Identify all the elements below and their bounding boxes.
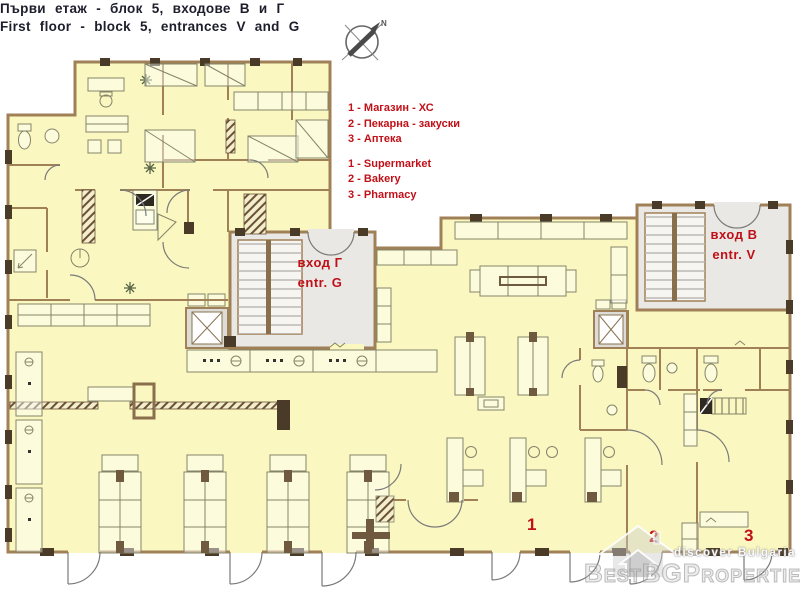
legend-item-en-2: 2 - Bakery <box>348 172 460 188</box>
legend-item-bg-1: 1 - Магазин - ХС <box>348 101 460 117</box>
entrance-v-label: вход В entr. V <box>686 225 782 265</box>
floor-plan-drawing <box>0 0 800 600</box>
legend-item-en-1: 1 - Supermarket <box>348 157 460 173</box>
unit-label-pharmacy: 3 <box>744 526 753 546</box>
watermark-brand: BestBGProperties <box>584 558 800 589</box>
legend-item-bg-3: 3 - Аптека <box>348 132 460 148</box>
compass-north-label: N <box>381 19 387 28</box>
legend: 1 - Магазин - ХС 2 - Пекарна - закуски 3… <box>348 101 460 203</box>
legend-item-en-3: 3 - Pharmacy <box>348 188 460 204</box>
unit-label-supermarket: 1 <box>527 515 536 535</box>
floorplan-page: N Първи етаж - блок 5, входове В и Г Fir… <box>0 0 800 600</box>
legend-item-bg-2: 2 - Пекарна - закуски <box>348 117 460 133</box>
fridge-cases <box>16 352 42 552</box>
entrance-g-label: вход Г entr. G <box>272 253 368 293</box>
